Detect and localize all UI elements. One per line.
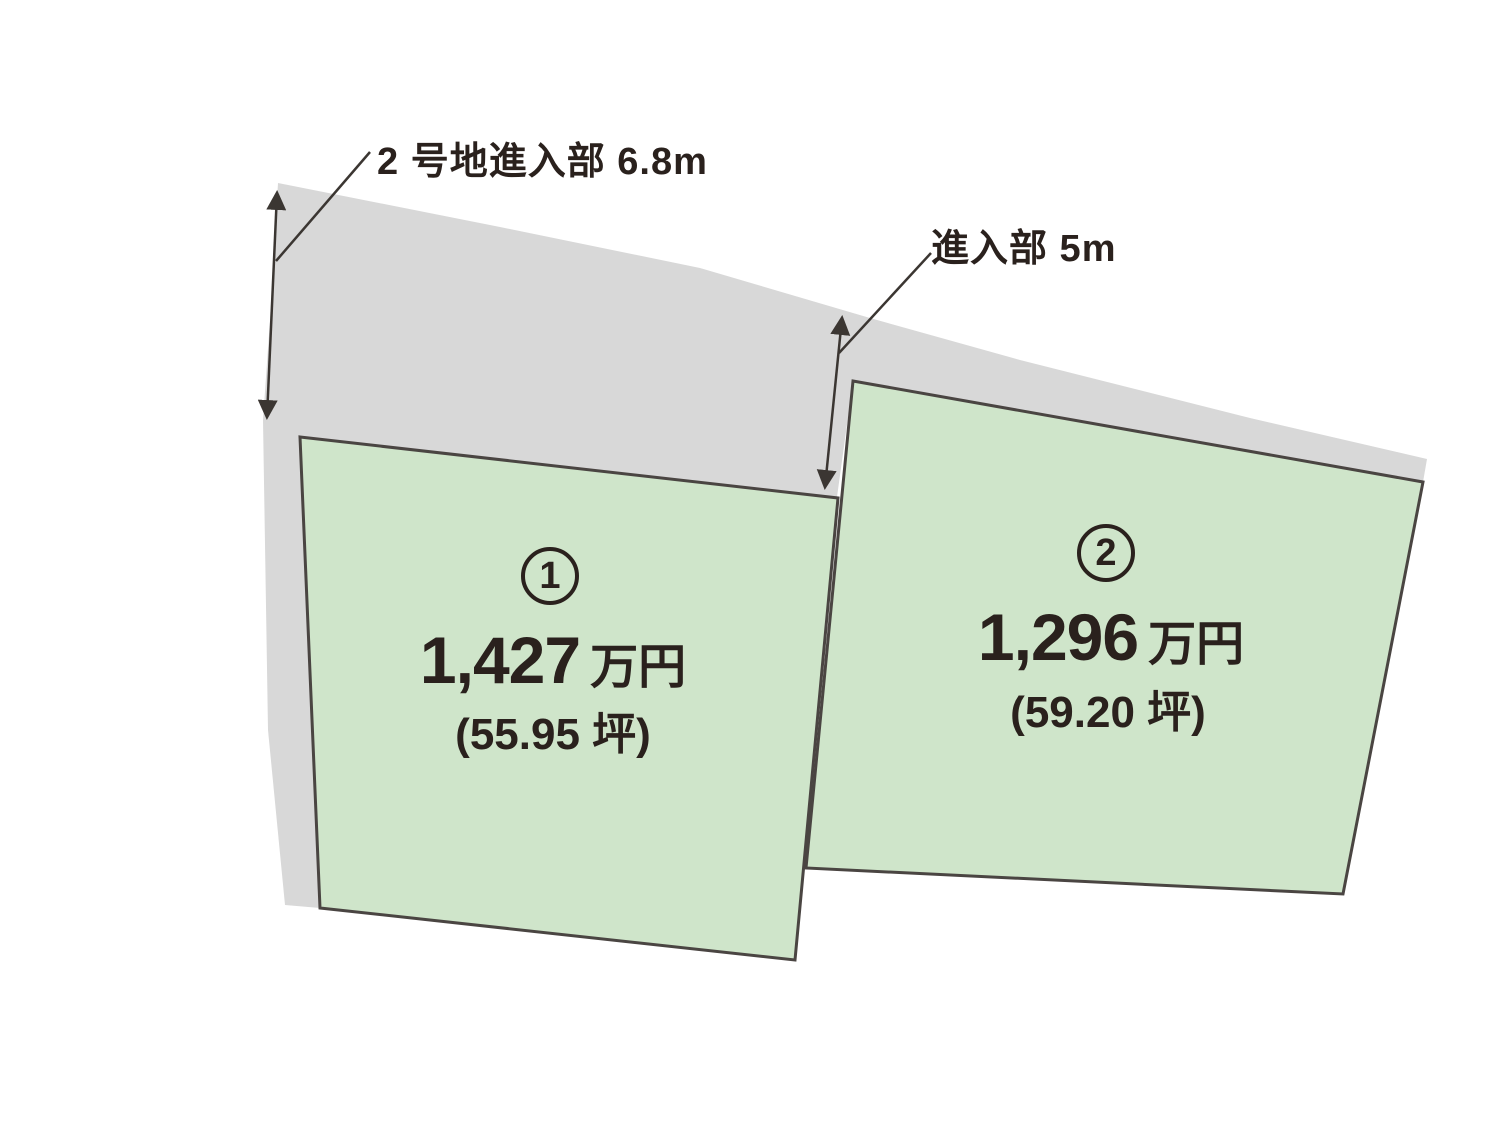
plot-1-price-unit: 万円 bbox=[590, 627, 686, 697]
land-plot-diagram: 2 号地進入部 6.8m 進入部 5m 1 1,427 万円 (55.95 坪)… bbox=[0, 0, 1500, 1125]
plot-1-price-value: 1,427 bbox=[420, 622, 580, 698]
plot-1-price: 1,427 万円 bbox=[420, 622, 686, 698]
plot-1-number-badge: 1 bbox=[521, 547, 579, 605]
plot-2-price-unit: 万円 bbox=[1148, 604, 1244, 674]
plot-1-area: (55.95 坪) bbox=[455, 698, 651, 762]
plot-2-price: 1,296 万円 bbox=[978, 599, 1244, 675]
plot-2-number: 2 bbox=[1095, 532, 1116, 575]
diagram-canvas bbox=[0, 0, 1500, 1125]
entrance-left-label: 2 号地進入部 6.8m bbox=[377, 130, 708, 185]
plot-2-price-value: 1,296 bbox=[978, 599, 1138, 675]
entrance-mid-label: 進入部 5m bbox=[931, 217, 1116, 272]
plot-2-number-badge: 2 bbox=[1077, 524, 1135, 582]
plot-2-area: (59.20 坪) bbox=[1010, 676, 1206, 740]
plot-1-number: 1 bbox=[539, 555, 560, 598]
